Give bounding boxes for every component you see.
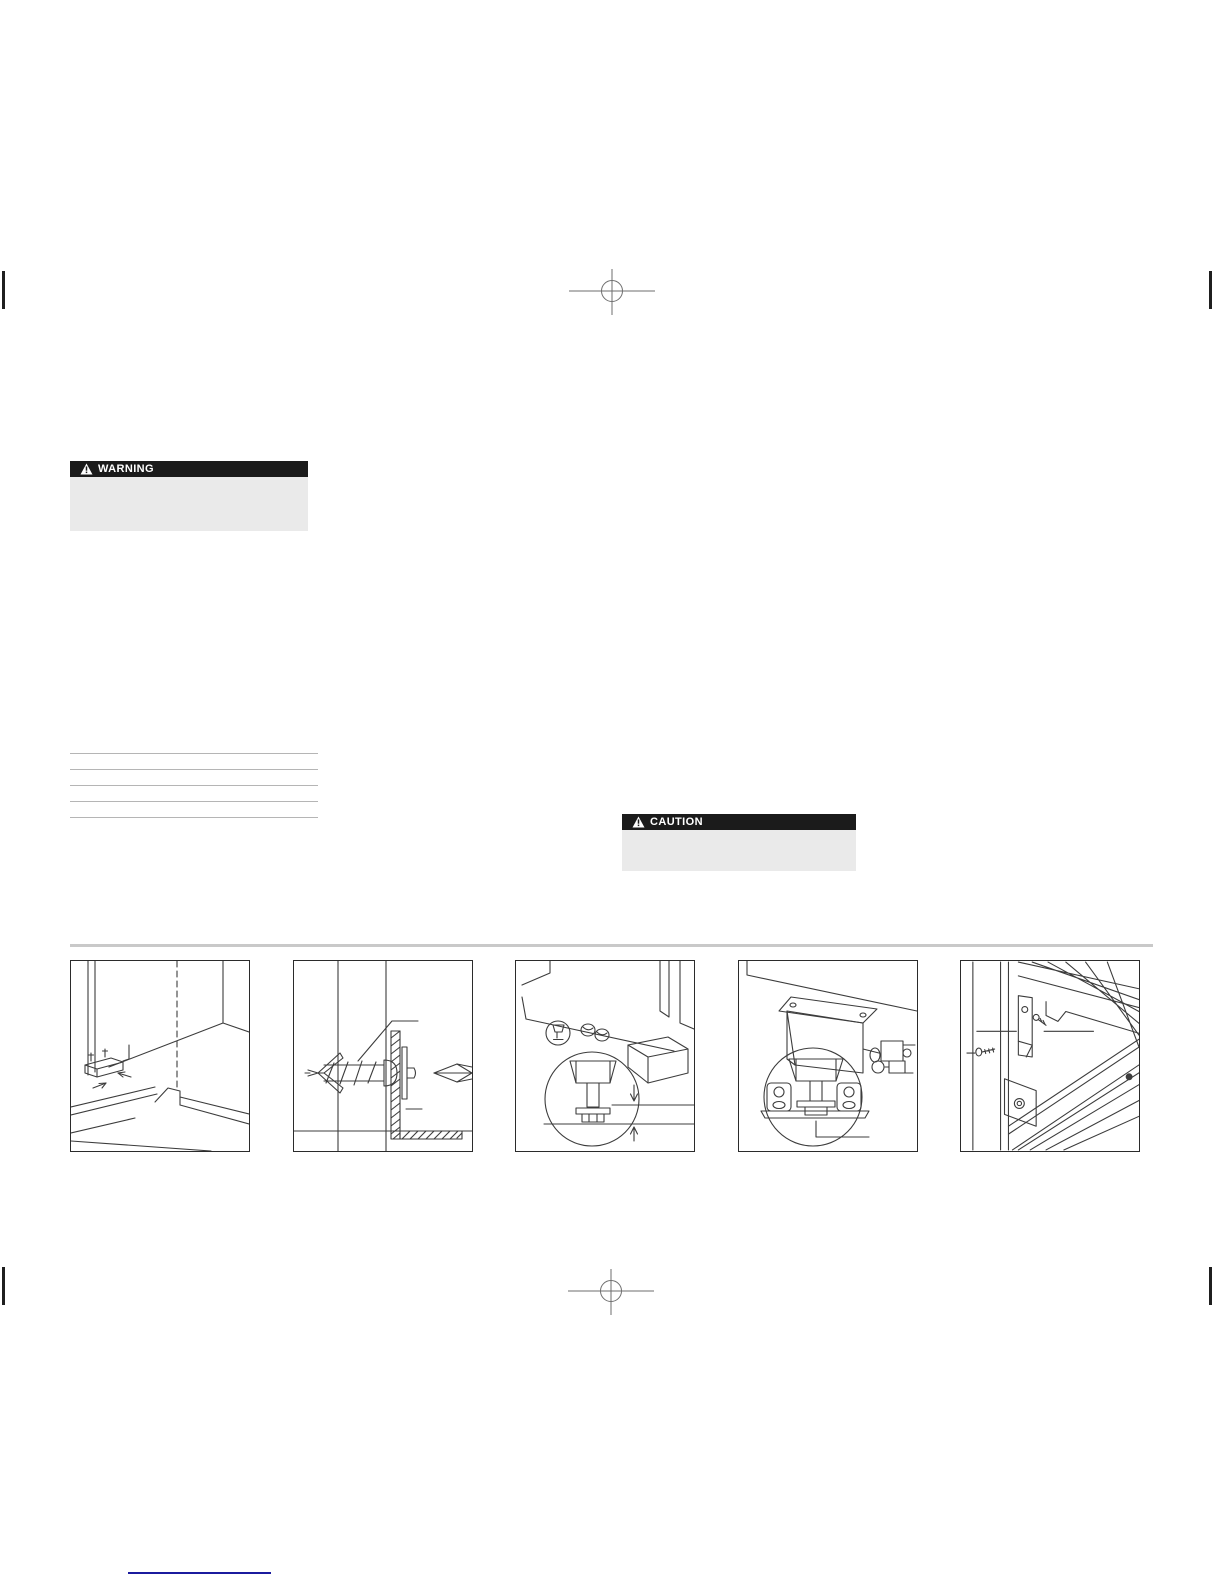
registration-mark-top <box>564 265 660 317</box>
warning-box: WARNING <box>70 461 308 531</box>
bracket-screw <box>1033 1014 1046 1025</box>
gas-valve-assembly <box>863 1041 915 1073</box>
wall-corner <box>522 961 550 985</box>
wall-right-corner <box>223 961 249 1032</box>
figure-wall-anchor-screw-into-bracket <box>293 960 473 1152</box>
callout-anchor <box>358 1021 418 1061</box>
cabinet-bottom-edge <box>522 997 674 1051</box>
blank-line <box>70 753 318 754</box>
dimension-arrows <box>93 1072 131 1088</box>
callout-bracket <box>816 1121 869 1137</box>
mounting-bracket <box>1018 996 1032 1057</box>
registration-mark-bottom <box>563 1265 659 1317</box>
warning-triangle-icon <box>80 463 93 475</box>
cabinet-underside <box>747 961 917 1011</box>
section-divider <box>70 944 1153 947</box>
caution-triangle-icon <box>632 816 645 828</box>
leveling-leg-gap-illustration <box>516 961 694 1151</box>
mounting-plate <box>779 997 877 1023</box>
wall-anchor-illustration <box>294 961 472 1151</box>
toggle-anchor <box>305 1053 384 1093</box>
washer-plate <box>402 1047 407 1099</box>
shelf-rails <box>1008 1039 1139 1150</box>
hinge-dot <box>1126 1073 1133 1080</box>
anti-tip-bracket <box>85 1049 123 1077</box>
leg-retainer-illustration <box>739 961 917 1151</box>
blank-line <box>70 817 318 818</box>
rollers <box>581 1024 609 1041</box>
drain-pan <box>628 1037 688 1083</box>
screwdriver-tip <box>434 1064 472 1082</box>
footer-link-underline[interactable] <box>128 1572 271 1574</box>
loose-screw <box>976 1048 995 1056</box>
front-leveling-leg <box>546 1021 570 1045</box>
figure-leveling-leg-height-gap-detail <box>515 960 695 1152</box>
blank-line <box>70 769 318 770</box>
wire-shelf <box>1018 962 1139 1047</box>
shelf-bracket-illustration <box>961 961 1139 1151</box>
anti-tip-bracket-illustration <box>71 961 249 1151</box>
magnifier-circle <box>545 1052 639 1146</box>
crop-tick-top-right <box>1209 271 1212 309</box>
figure-anti-tip-bracket-floor-corner <box>70 960 250 1152</box>
warning-header: WARNING <box>70 461 308 477</box>
figure-leveling-leg-retainer-bracket-detail <box>738 960 918 1152</box>
caution-label: CAUTION <box>650 814 703 830</box>
blank-line <box>70 801 318 802</box>
blank-line <box>70 785 318 786</box>
blank-line-list <box>70 753 318 818</box>
caution-body <box>622 830 856 871</box>
leg-housing-box <box>787 1011 863 1073</box>
leveling-foot-detail <box>570 1061 616 1122</box>
crop-tick-bottom-left <box>2 1267 5 1305</box>
cabinet-right-side <box>660 961 694 1029</box>
floor-step <box>155 1088 180 1105</box>
caution-header: CAUTION <box>622 814 856 830</box>
warning-label: WARNING <box>98 461 154 477</box>
warning-body <box>70 477 308 531</box>
caution-box: CAUTION <box>622 814 856 871</box>
figure-shelf-bracket-mounting-screws <box>960 960 1140 1152</box>
crop-tick-top-left <box>2 271 5 309</box>
floor-reference-lines <box>544 1105 694 1124</box>
manual-page: WARNING CAUTION <box>0 0 1224 1584</box>
crop-tick-bottom-right <box>1209 1267 1212 1305</box>
